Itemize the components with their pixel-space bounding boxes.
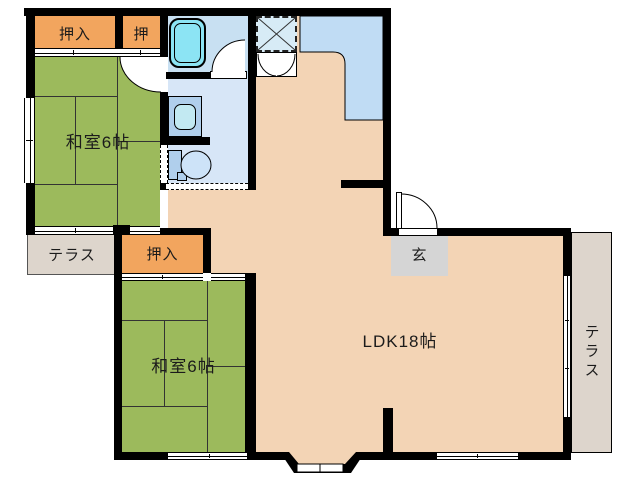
wall-washitsu2-right xyxy=(245,273,256,460)
wall-bottom-1 xyxy=(114,452,168,460)
wall-washroom-right xyxy=(248,8,256,190)
label-genkan: 玄 xyxy=(391,240,448,268)
window-left-wall xyxy=(24,98,35,183)
tatami-line xyxy=(122,320,208,321)
oshiire2-sliding-door xyxy=(122,273,203,281)
bathtub xyxy=(169,18,206,68)
kitchen-sink xyxy=(354,60,378,107)
label-washitsu-1: 和室6帖 xyxy=(35,126,161,154)
wall-closet-right xyxy=(160,8,168,57)
washitsu2-entry-sliding-door xyxy=(211,273,245,281)
bay-window-glass xyxy=(297,464,343,472)
tatami-line xyxy=(35,184,118,185)
wall-entry-left xyxy=(383,228,398,236)
wall-pillar xyxy=(113,225,130,235)
entrance-door-sill xyxy=(398,228,438,236)
label-ldk: LDK18帖 xyxy=(328,325,472,353)
wall-closet-divider xyxy=(115,8,123,48)
opening-dashed xyxy=(160,145,168,183)
entrance-door-arc xyxy=(401,194,437,228)
wall-kitchen-right xyxy=(383,8,391,236)
wall-ldk-bottom-stub xyxy=(383,408,393,452)
wall-oshiire2-right xyxy=(203,228,211,273)
double-door-closet xyxy=(256,52,297,77)
terrace-sliding-window-2 xyxy=(130,226,160,235)
wall-toilet-stub xyxy=(161,137,210,145)
entrance-door-leaf xyxy=(396,192,402,229)
label-oshiire-2: 押入 xyxy=(122,238,203,268)
terrace-sliding-window xyxy=(35,226,113,235)
label-terrace-left: テラス xyxy=(27,240,117,268)
label-terrace-right: テラス xyxy=(574,295,608,410)
tatami-line xyxy=(122,406,208,407)
closet-sliding-door xyxy=(35,48,160,57)
label-washitsu-2: 和室6帖 xyxy=(122,350,245,378)
washbasin xyxy=(168,96,202,137)
toilet-base xyxy=(177,172,187,181)
wall-entry-right xyxy=(438,228,571,236)
label-oshiire-1: 押入 xyxy=(35,18,115,48)
wall-top xyxy=(24,8,391,16)
window-washitsu2-bottom xyxy=(168,452,247,460)
wall-bottom-4 xyxy=(518,452,571,460)
x-marked-storage xyxy=(256,16,297,52)
bathroom-door-leaf xyxy=(210,71,247,79)
window-ldk-bottom xyxy=(437,452,518,460)
tatami-line xyxy=(35,96,118,97)
wall-kitchen-stub xyxy=(341,180,383,188)
wall-bottom-3 xyxy=(355,452,437,460)
window-ldk-right xyxy=(563,276,571,417)
floor-plan: 押入 押 和室6帖 テラス 押入 和室6帖 LDK18帖 玄 テラス xyxy=(0,0,638,480)
wall-bathroom-bottom xyxy=(166,72,212,79)
label-oshi: 押 xyxy=(123,18,160,48)
wall-ldk-right-upper xyxy=(563,236,571,276)
accordion-door xyxy=(166,183,248,190)
